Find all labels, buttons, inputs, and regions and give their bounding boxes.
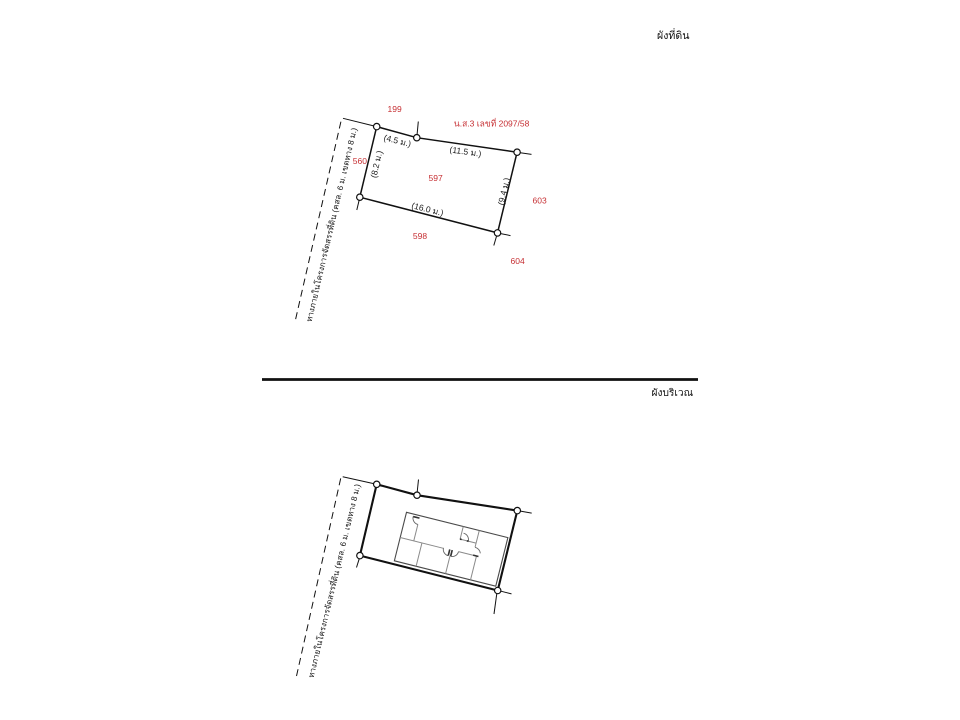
- svg-text:ผังบริเวณ: ผังบริเวณ: [652, 387, 694, 399]
- svg-text:560: 560: [353, 156, 367, 166]
- svg-text:199: 199: [388, 104, 402, 114]
- svg-text:น.ส.3 เลขที่ 2097/58: น.ส.3 เลขที่ 2097/58: [454, 117, 530, 128]
- svg-text:603: 603: [533, 196, 547, 206]
- svg-text:604: 604: [511, 256, 525, 266]
- svg-text:ผังที่ดิน: ผังที่ดิน: [657, 28, 690, 42]
- svg-text:597: 597: [429, 173, 443, 183]
- svg-text:598: 598: [413, 231, 427, 241]
